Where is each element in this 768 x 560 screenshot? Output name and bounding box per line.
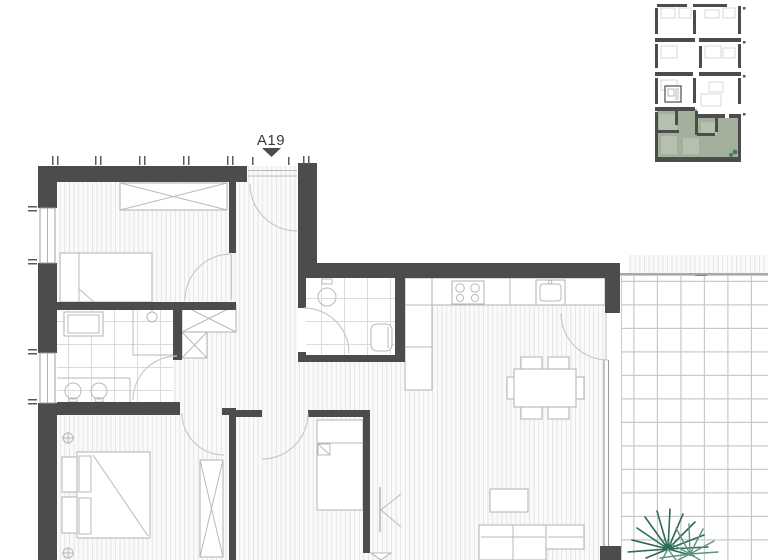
nightstand: [62, 457, 77, 492]
toilet: [371, 324, 392, 351]
chair: [548, 407, 569, 419]
chair: [548, 357, 569, 369]
keyplan-plant: [733, 150, 738, 155]
balcony: [620, 255, 768, 560]
keyplan-entry-markers: [743, 7, 746, 116]
coffee-table: [490, 489, 528, 512]
unit-label: A19: [257, 132, 285, 149]
single-bed: [317, 420, 363, 510]
chair: [521, 407, 542, 419]
entrance-marker: A19: [257, 132, 285, 157]
single-bed: [60, 253, 152, 302]
double-bed: [77, 452, 150, 538]
nightstand: [62, 497, 77, 533]
triangle-down-icon: [262, 148, 281, 157]
keyplan-plant: [729, 153, 733, 157]
keyplan-stair-core: [665, 86, 681, 102]
vanity-sink: [64, 312, 103, 336]
balcony-tiles: [621, 276, 768, 560]
chair: [521, 357, 542, 369]
facade-column: [600, 546, 622, 560]
floor-plan-page: A19: [0, 0, 768, 560]
dining-table: [514, 369, 576, 407]
tall-cabinets: [405, 278, 432, 390]
keyplan: [649, 2, 746, 165]
